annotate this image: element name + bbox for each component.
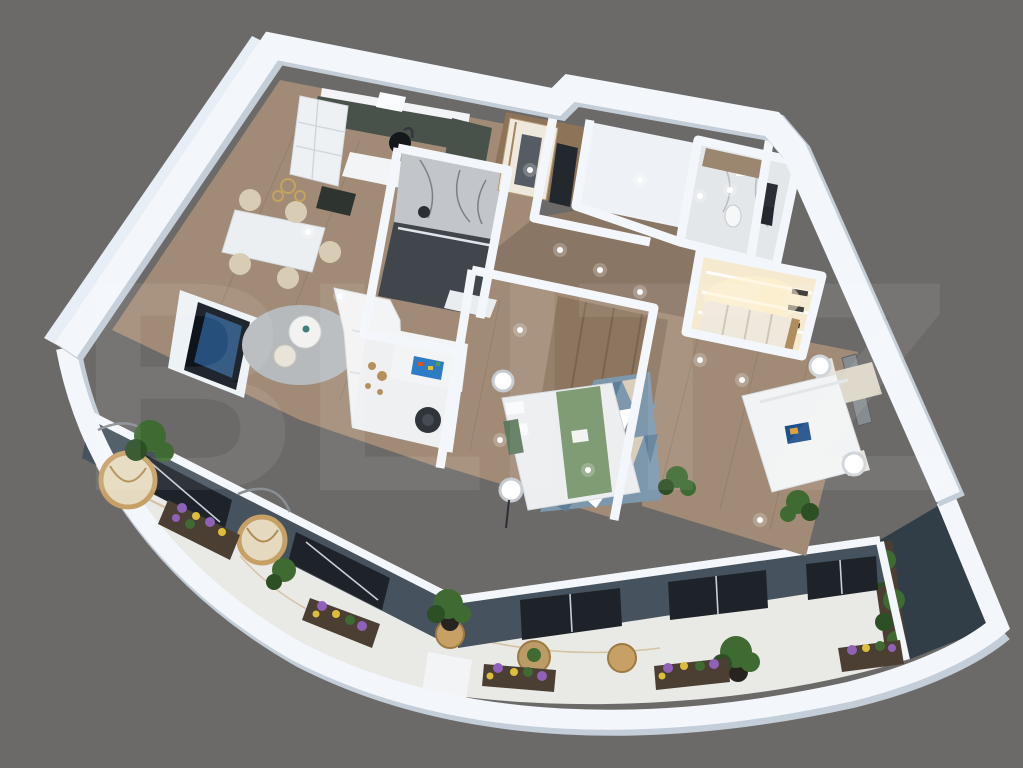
open-shelving [290, 96, 348, 186]
shower-head [418, 206, 430, 218]
apartment-3d-plan: BLITZ [0, 0, 1023, 768]
table-plant [527, 648, 541, 662]
dining-chair [239, 189, 261, 211]
watermark-text: BLITZ [75, 218, 955, 554]
wicker-chair [608, 644, 636, 672]
floor-plan-render: BLITZ [0, 0, 1023, 768]
